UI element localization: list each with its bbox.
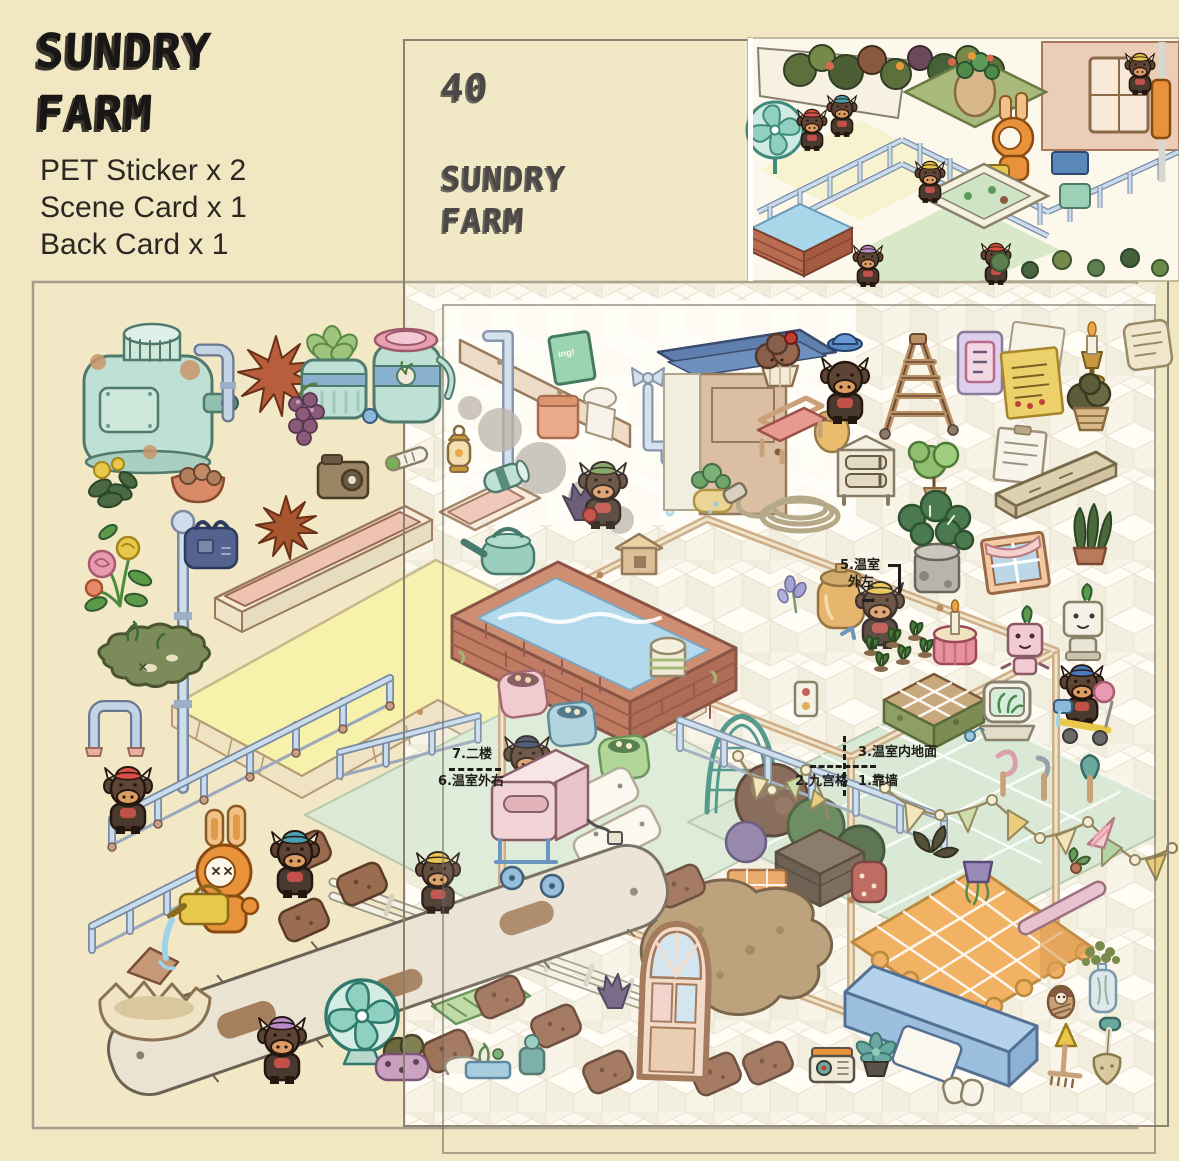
card-title-line1: SUNDRY <box>440 158 567 200</box>
card-title-line2: FARM <box>440 200 526 242</box>
product-image: SUNDRY FARM PET Sticker x 2 Scene Card x… <box>0 0 1179 1161</box>
sticky-notes <box>1001 347 1064 418</box>
nesting-doll <box>1048 986 1074 1018</box>
camera-box <box>318 455 368 498</box>
nightstand <box>838 436 894 504</box>
label-second-floor: 7.二楼 <box>452 747 492 763</box>
contents-item-1: PET Sticker x 2 <box>40 152 246 189</box>
crosshair-horizontal <box>810 765 876 768</box>
window-curtain <box>981 532 1050 594</box>
label-greenhouse-outer-left-1: 5.温室 <box>840 558 880 574</box>
label-greenhouse-floor: 3.温室内地面 <box>858 745 937 761</box>
blue-bag <box>185 522 237 568</box>
preview-left-border <box>748 38 753 281</box>
contents-item-2: Scene Card x 1 <box>40 189 247 226</box>
purple-poster <box>958 332 1002 394</box>
label-greenhouse-outer-left-2: 外左 <box>848 575 874 591</box>
label-nine-grid: 2.九宫格 <box>795 774 848 790</box>
finished-scene-preview <box>747 38 1179 287</box>
label-7-dashes <box>449 768 501 771</box>
label-against-wall: 1.靠墙 <box>858 774 898 790</box>
preview-blue-sign <box>1052 152 1088 174</box>
label-greenhouse-outer-right: 6.温室外右 <box>438 774 504 790</box>
preview-mint-box <box>1060 184 1090 208</box>
brand-title-line1: SUNDRY <box>35 24 214 80</box>
card-number: 40 <box>440 66 490 110</box>
contents-item-3: Back Card x 1 <box>40 226 228 263</box>
label-5-bracket <box>888 564 901 593</box>
label-5-tick <box>862 599 874 602</box>
radio <box>810 1048 854 1082</box>
brand-title-line2: FARM <box>35 86 155 142</box>
paper-scroll <box>1123 319 1173 371</box>
